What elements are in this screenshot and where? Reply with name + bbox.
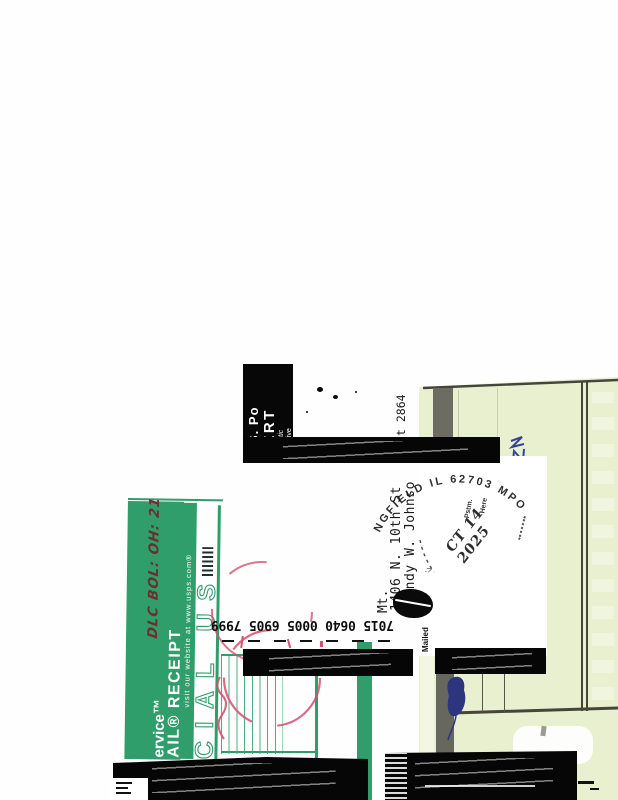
card-thin-line-2 bbox=[504, 674, 505, 712]
edge-dash-2 bbox=[590, 788, 599, 790]
toner-dot-1 bbox=[317, 387, 323, 392]
tracking-number: 7015 0640 0005 6905 7999 bbox=[212, 610, 394, 632]
handwritten-note: DLC BOL: OH: 21 bbox=[144, 508, 163, 638]
scanned-document-page: NGFIELD IL 62703 MPO Pstm. Here CT 14 20… bbox=[0, 0, 618, 800]
redaction-bar-address bbox=[243, 437, 500, 463]
address-street: 1406 N. 10th St bbox=[389, 461, 403, 611]
card-vertical-rule-a bbox=[581, 381, 583, 711]
toner-dot-2 bbox=[333, 395, 338, 399]
noise-dash-3 bbox=[116, 792, 131, 794]
handwritten-note-text: DLC BOL: OH: 21 bbox=[145, 496, 163, 640]
address-name: Randy W. Johnso bbox=[403, 456, 418, 606]
address-street-fragment: t 2864 bbox=[394, 378, 407, 436]
mailed-label: Mailed bbox=[421, 617, 431, 652]
fee-table-bottom-rule bbox=[221, 751, 318, 753]
redaction-bar-bottom-left bbox=[113, 757, 368, 800]
card-vertical-rule-b bbox=[586, 381, 588, 711]
card-thin-line-1 bbox=[482, 674, 483, 712]
redaction-blob bbox=[393, 589, 433, 618]
card-texture-column bbox=[592, 392, 614, 700]
address-city: Mt. bbox=[376, 571, 390, 613]
bottom-left-noise-patch bbox=[110, 778, 148, 800]
toner-dot-4 bbox=[355, 391, 357, 393]
blue-ink-blob bbox=[440, 670, 480, 745]
card-faint-line-2 bbox=[497, 388, 498, 443]
toner-dot-3 bbox=[306, 411, 308, 413]
noise-dash-1 bbox=[116, 782, 132, 784]
scan-noise-streak bbox=[425, 785, 535, 787]
blob-scratch bbox=[395, 599, 431, 607]
scan-noise-column bbox=[385, 753, 407, 799]
redaction-bar-middle bbox=[243, 649, 413, 676]
edge-dash-1 bbox=[578, 781, 594, 784]
redaction-bar-bottom-right bbox=[385, 751, 577, 800]
noise-dash-2 bbox=[116, 787, 128, 789]
